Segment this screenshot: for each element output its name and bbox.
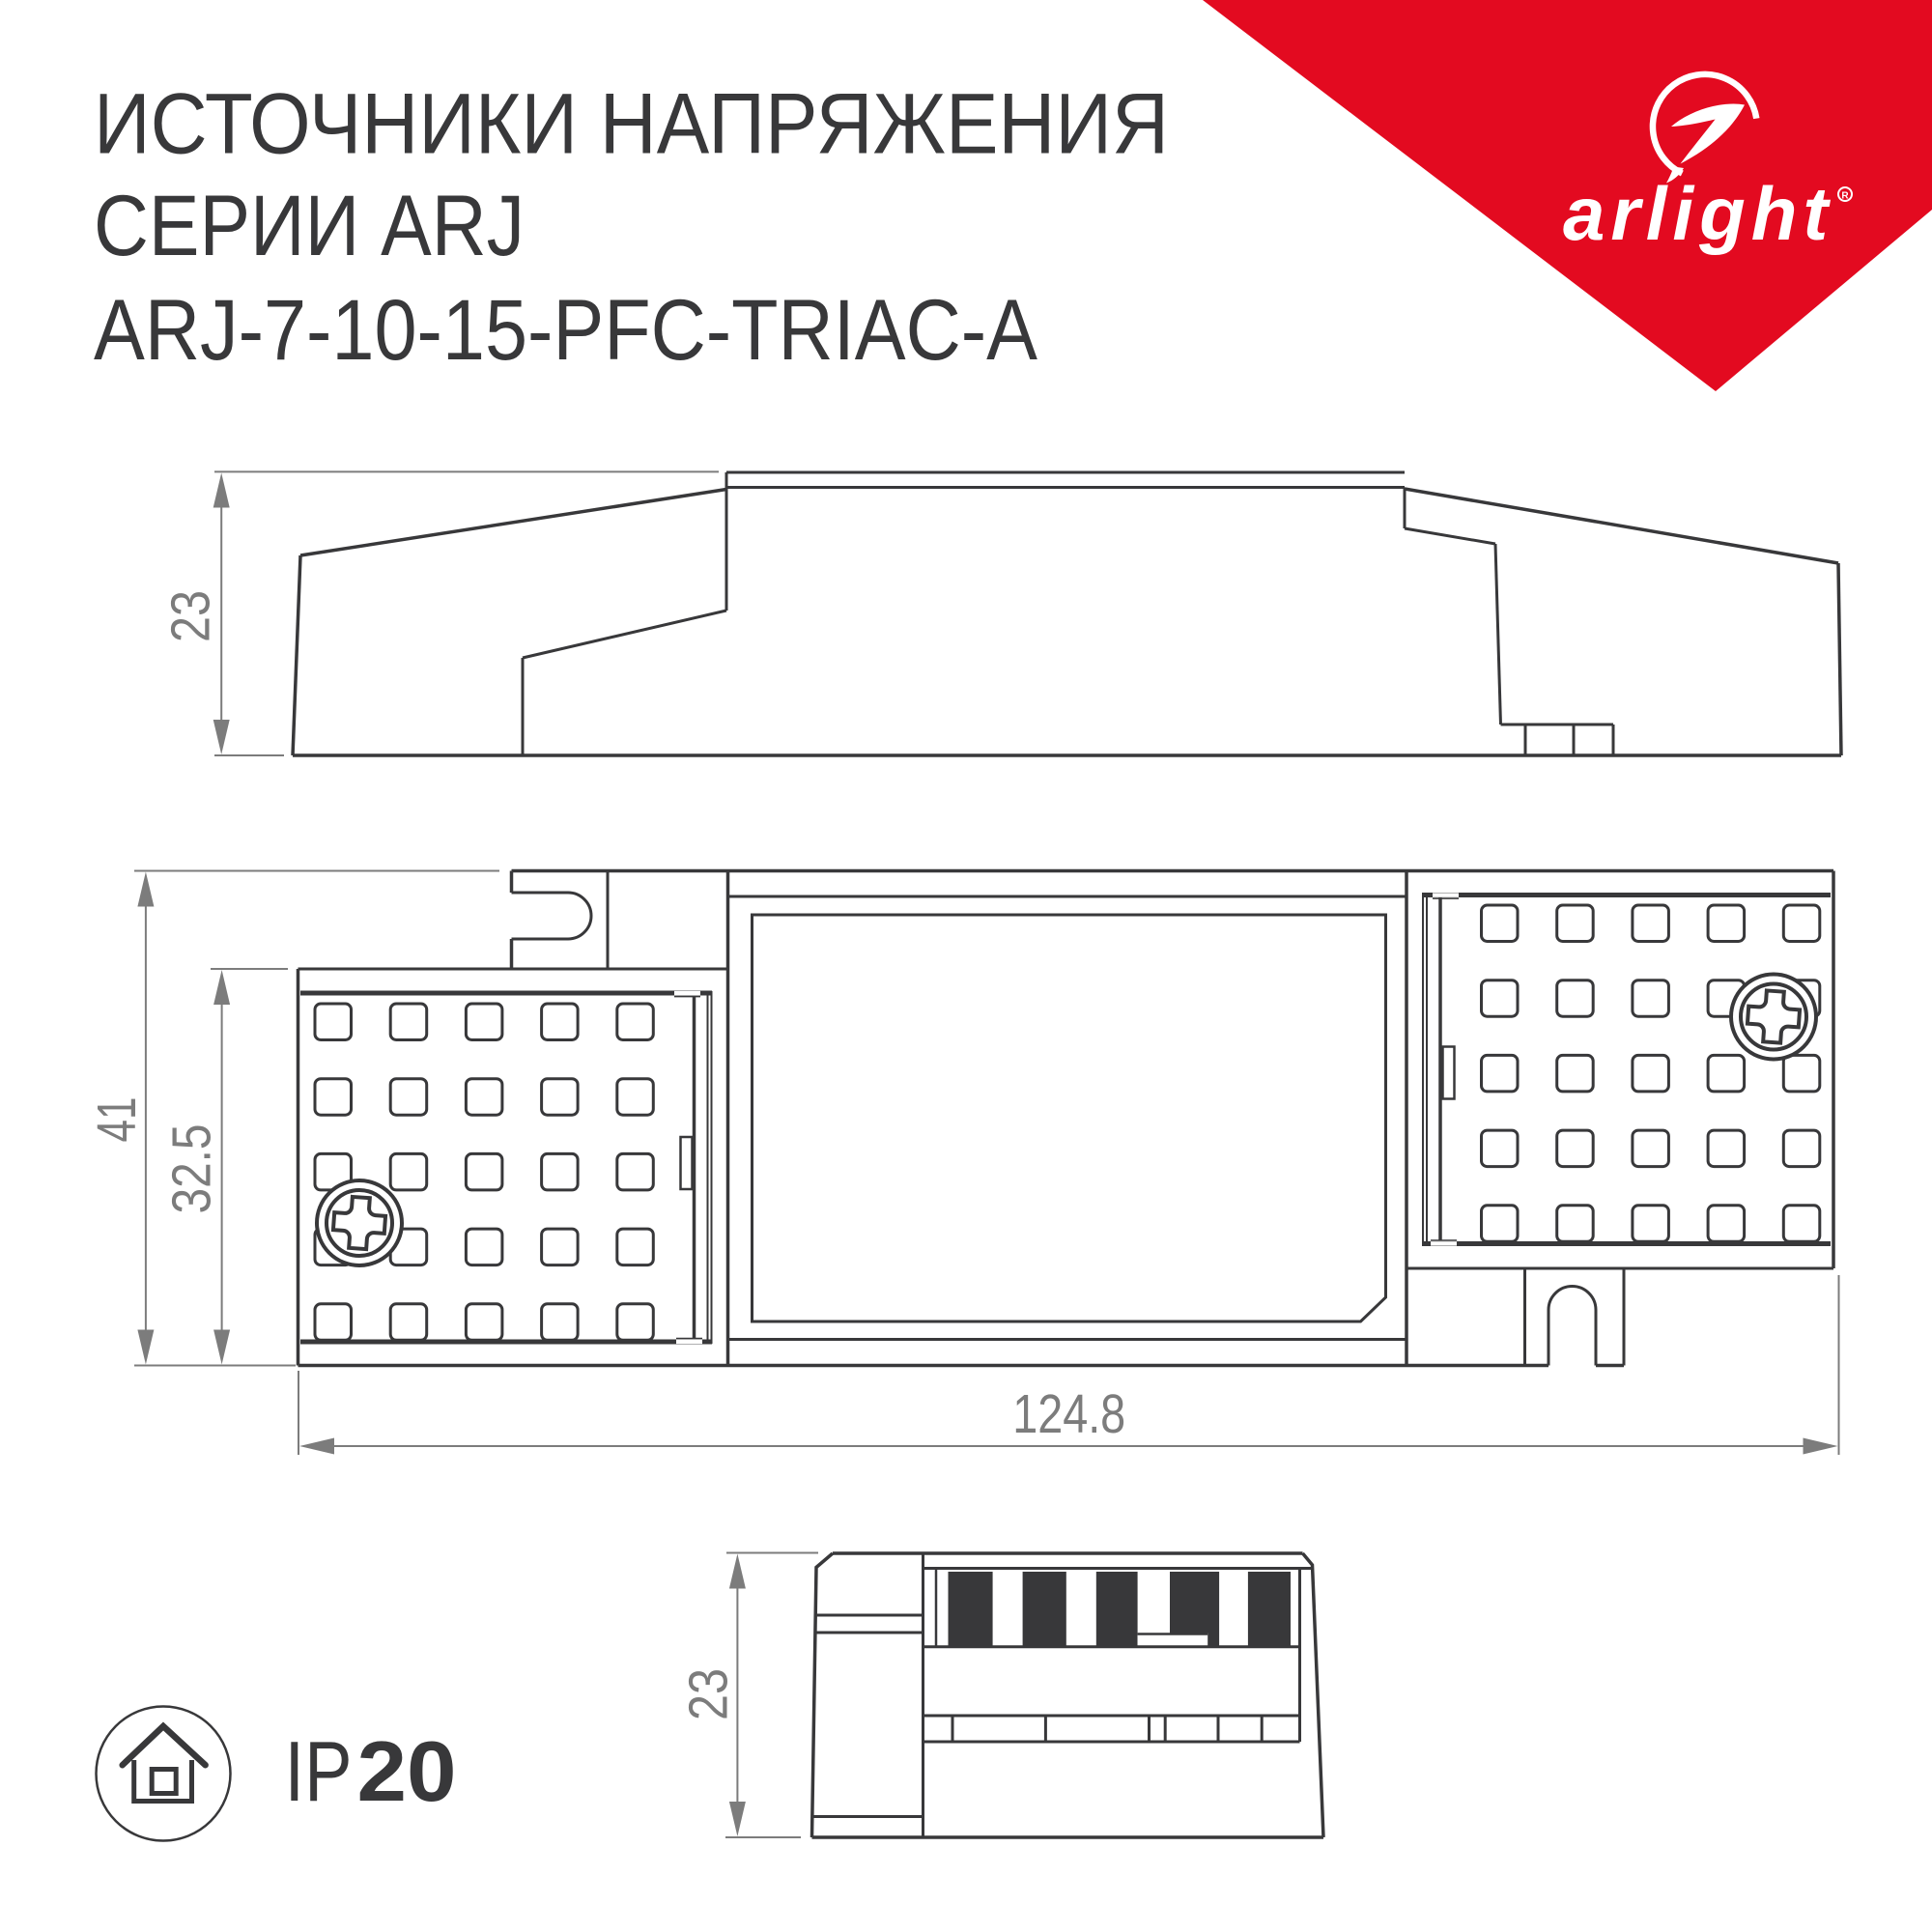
svg-text:IP: IP	[285, 1723, 353, 1819]
svg-text:124.8: 124.8	[1012, 1383, 1125, 1445]
svg-text:arlight: arlight	[1563, 171, 1833, 256]
svg-text:23: 23	[678, 1668, 740, 1720]
svg-text:ИСТОЧНИКИ НАПРЯЖЕНИЯ: ИСТОЧНИКИ НАПРЯЖЕНИЯ	[94, 75, 1169, 172]
svg-text:41: 41	[86, 1097, 148, 1143]
svg-text:20: 20	[357, 1723, 457, 1819]
svg-text:23: 23	[159, 590, 221, 642]
svg-text:СЕРИИ ARJ: СЕРИИ ARJ	[94, 177, 525, 273]
svg-text:32.5: 32.5	[161, 1124, 223, 1214]
svg-text:ARJ-7-10-15-PFC-TRIAC-A: ARJ-7-10-15-PFC-TRIAC-A	[94, 281, 1038, 378]
svg-text:R: R	[1841, 191, 1849, 202]
